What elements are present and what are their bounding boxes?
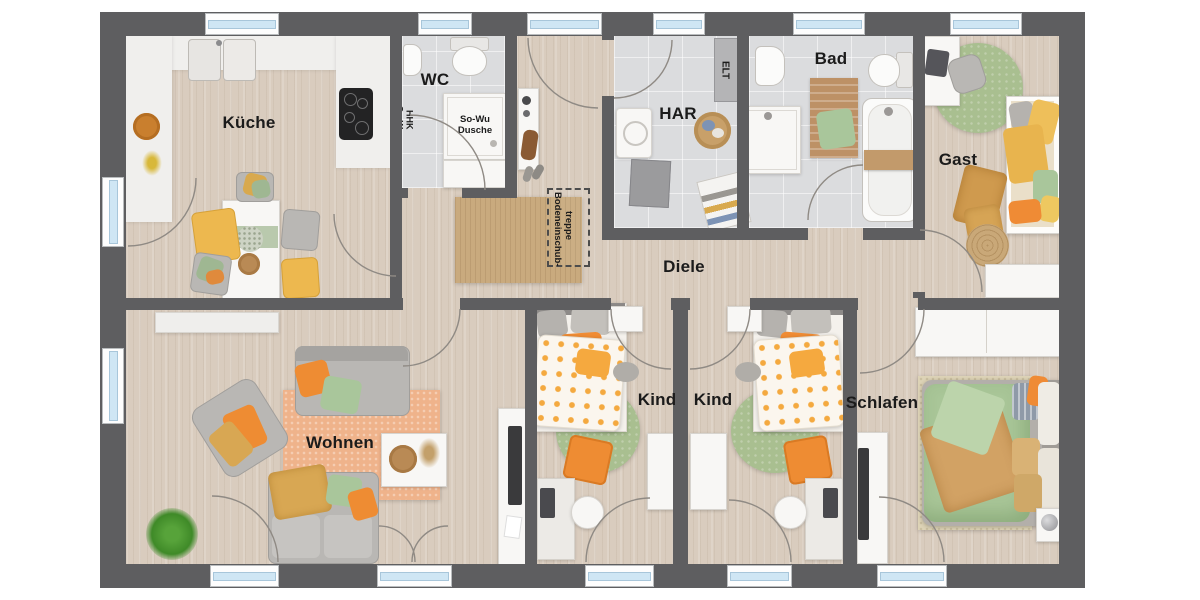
door-arc-kind1 [611,309,671,369]
room-label-kueche: Küche [223,113,276,133]
door-arc-wc [410,115,485,190]
door-arc-har [614,40,672,98]
floor-plan: So-Wu Dusche So-Wu HHK ELT [0,0,1200,600]
door-arc-bad [808,165,863,220]
door-arc-gast [920,230,982,292]
door-arc-kind2-terrace [729,500,791,562]
door-swing-arcs [0,0,1200,600]
door-arc-kueche-diele [334,214,396,276]
room-label-har: HAR [659,104,696,124]
door-arc-patio-right [412,526,448,562]
door-arc-schlafen-terrace [879,497,944,562]
room-label-bad: Bad [815,49,848,69]
door-arc-schlafen [860,309,924,373]
room-label-wc: WC [421,70,450,90]
door-arc-front-door [528,38,598,108]
door-arc-patio-left [379,526,415,562]
room-label-schlafen: Schlafen [846,393,918,413]
room-label-kind1: Kind [638,390,677,410]
door-arc-wohnen [403,309,460,366]
room-label-gast: Gast [939,150,978,170]
door-arc-kind1-terrace [586,498,650,562]
room-label-kind2: Kind [694,390,733,410]
door-arc-kueche-terrace [128,178,196,246]
room-label-diele: Diele [663,257,705,277]
door-arc-kind2 [690,309,750,369]
door-arc-wohnen-terrace [212,496,278,562]
room-label-wohnen: Wohnen [306,433,374,453]
